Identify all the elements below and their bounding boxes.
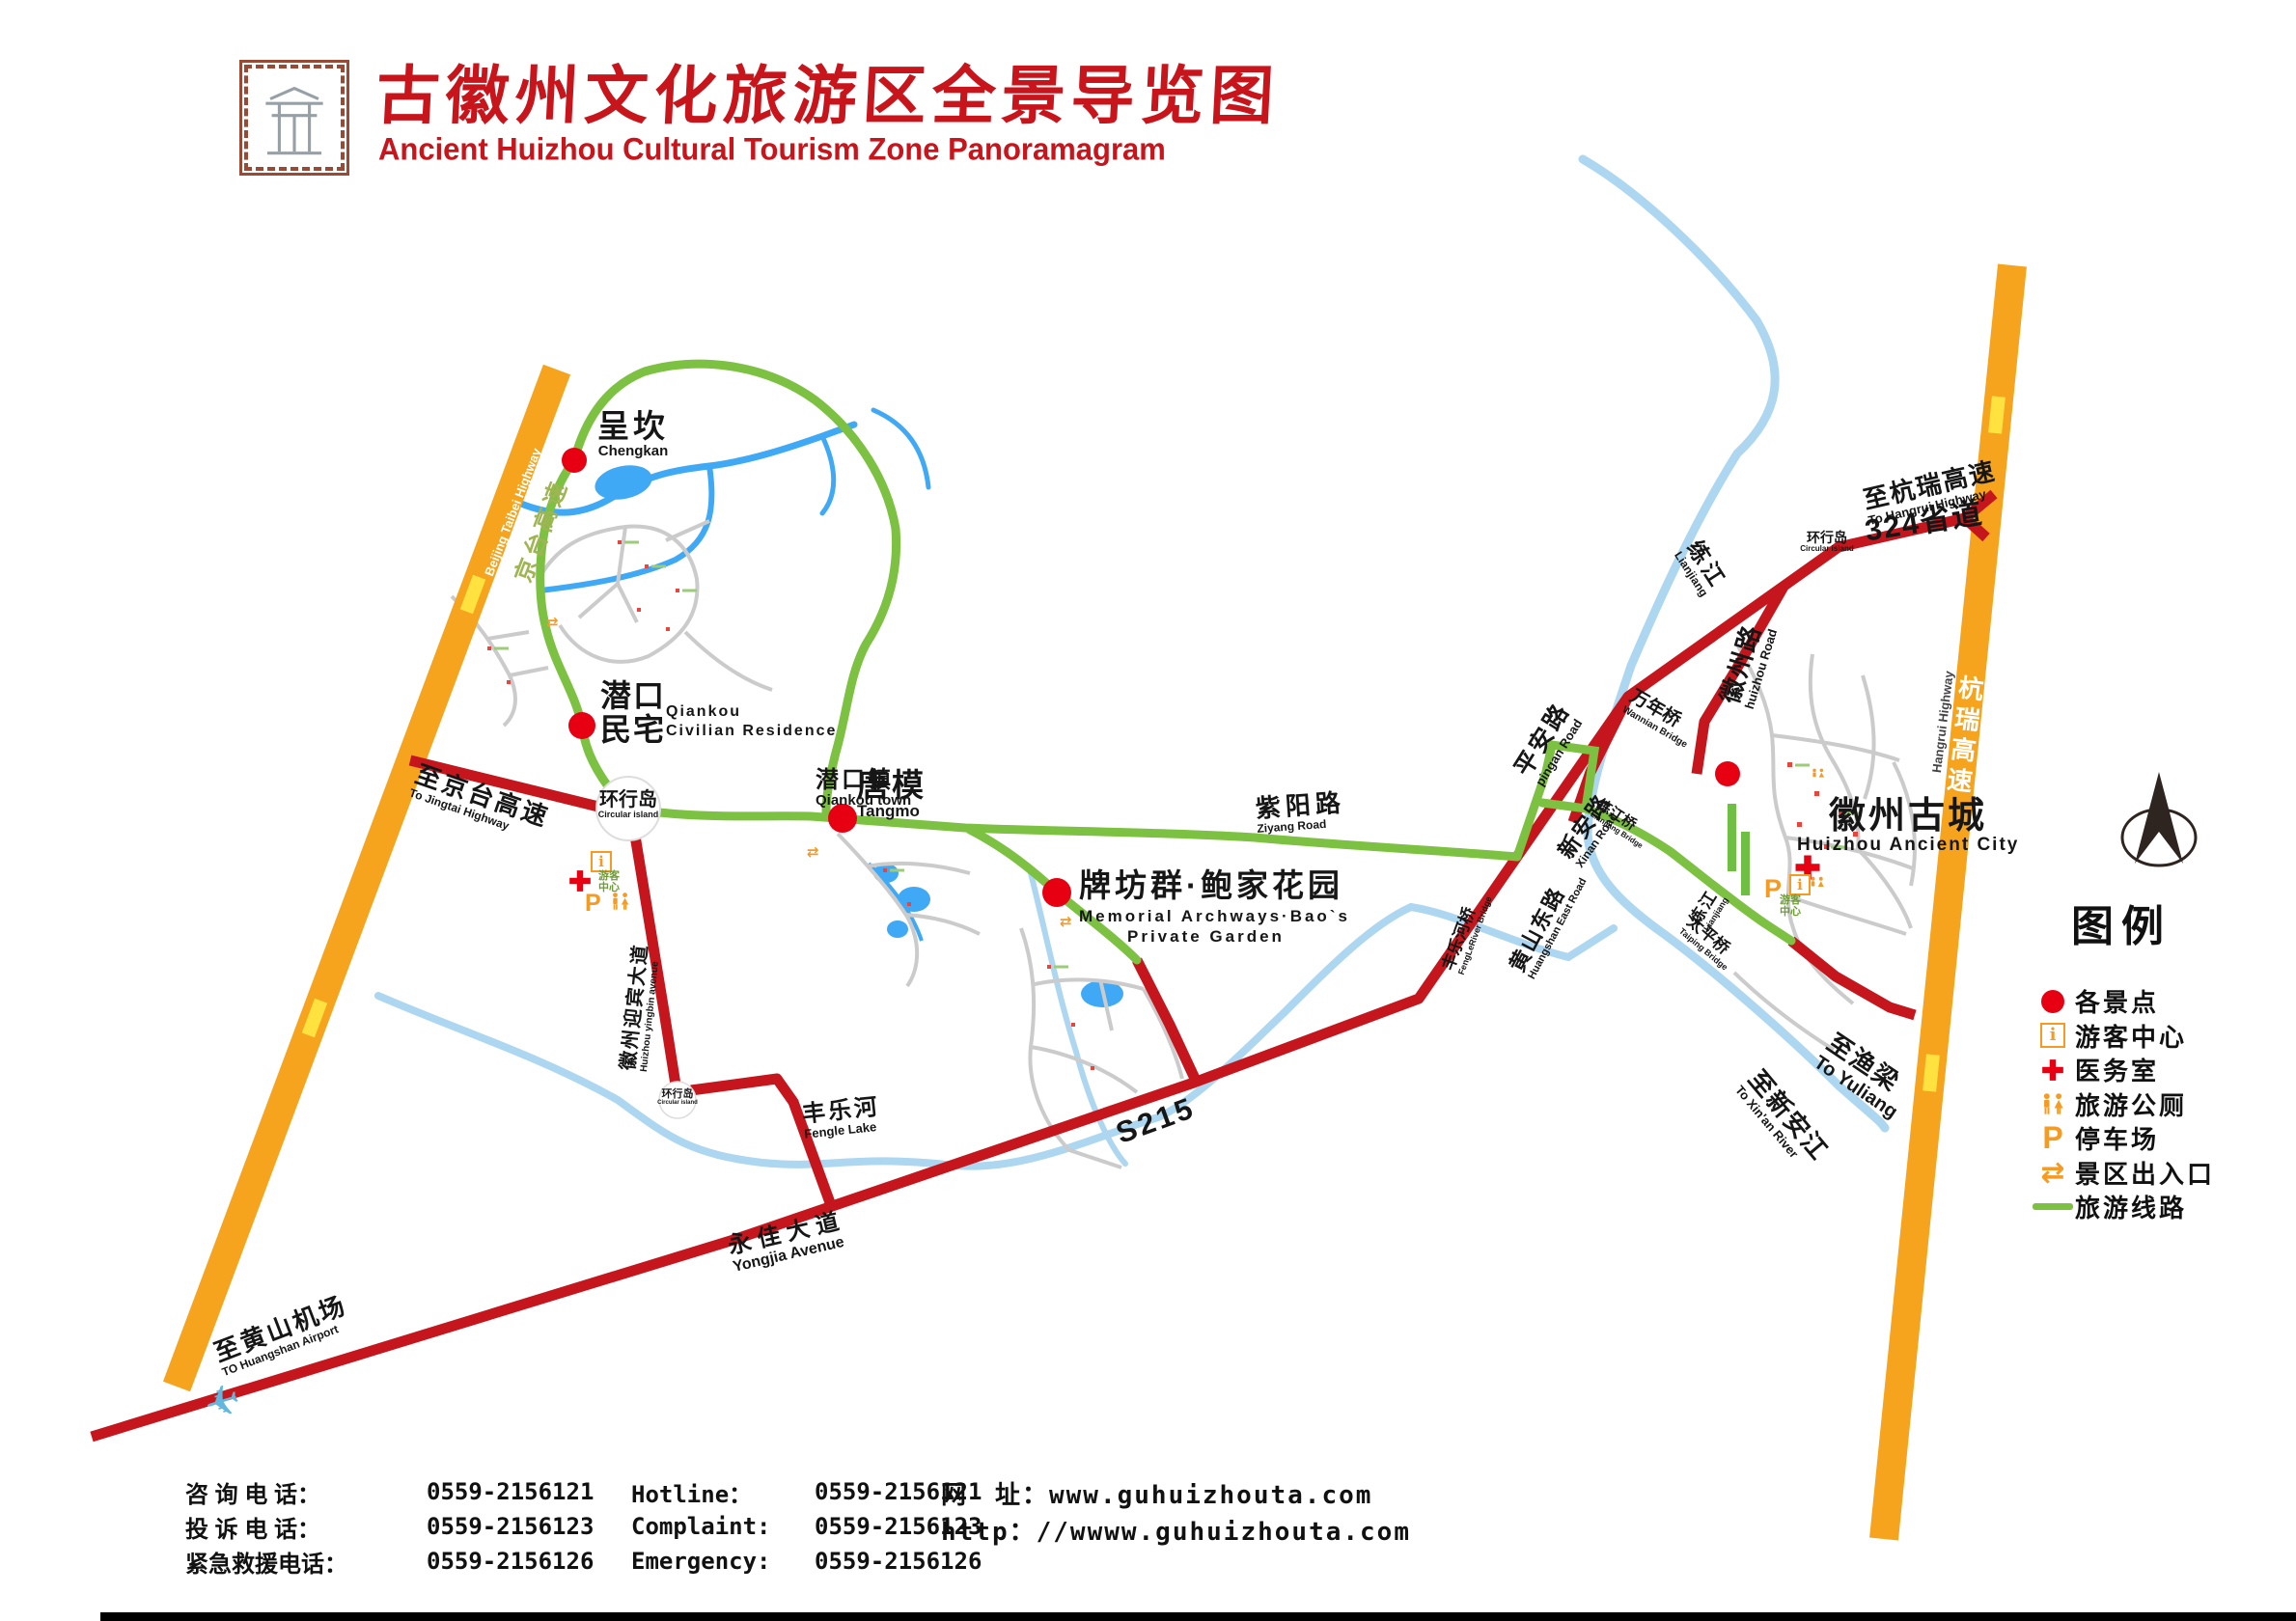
spot-huizhou-city	[1715, 761, 1740, 786]
legend-title: 图例	[2071, 892, 2296, 953]
contact-row-complaint: 投 诉 电 话： 0559-2156123 Complaint: 0559-21…	[185, 1509, 982, 1544]
panorama-map-page: 古徽州文化旅游区全景导览图 Ancient Huizhou Cultural T…	[0, 0, 2296, 1621]
pond-chengkan	[592, 460, 655, 505]
toilet-icon-city-north	[1811, 768, 1826, 782]
visitor-center-icon-city: i	[1789, 874, 1811, 895]
contact-info: 咨 询 电 话： 0559-2156121 Hotline： 0559-2156…	[185, 1474, 982, 1579]
river-fengle	[378, 873, 1614, 1167]
north-arrow-icon	[2122, 772, 2196, 865]
toilet-icon-west	[610, 892, 631, 911]
label-paifang-cn: 牌坊群·鲍家花园	[1079, 868, 1343, 903]
entrance-icon-1: ⇄	[546, 614, 559, 631]
label-qiankou-cn: 潜口 民宅	[600, 679, 666, 747]
website-line1: 网 址：www.guhuizhouta.com	[941, 1478, 1411, 1515]
tourism-route-line-icon	[2031, 1203, 2075, 1211]
scenic-spot-dot-icon	[2031, 989, 2075, 1014]
entrance-icon-2: ⇄	[807, 843, 819, 861]
label-paifang-en1: Memorial Archways·Bao`s	[1079, 908, 1350, 926]
website-info: 网 址：www.guhuizhouta.com http：//wwww.guhu…	[941, 1478, 1411, 1551]
label-ziyang-road: 紫阳路 Ziyang Road	[1255, 789, 1347, 836]
label-tangmo: 唐模 Tangmo	[857, 768, 927, 821]
entrance-exit-icon: ⇄	[2031, 1156, 2075, 1190]
visitor-center-icon-west: i	[591, 851, 612, 872]
legend-row-scenic-spot: 各景点	[2031, 984, 2296, 1019]
website-line2: http：//wwww.guhuizhouta.com	[941, 1515, 1411, 1552]
legend: 图例 各景点 i 游客中心 医务室 旅游	[2031, 892, 2296, 1224]
ancient-city-green-strips	[1728, 804, 1750, 895]
clinic-cross-icon	[2031, 1058, 2075, 1083]
contact-row-hotline: 咨 询 电 话： 0559-2156121 Hotline： 0559-2156…	[185, 1474, 982, 1509]
label-huizhou-city-en: Huizhou Ancient City	[1797, 836, 2019, 856]
legend-row-toilet: 旅游公厕	[2031, 1087, 2296, 1122]
page-subtitle: Ancient Huizhou Cultural Tourism Zone Pa…	[378, 131, 1166, 168]
tourist-center-text-city: 游客中心	[1780, 895, 1803, 918]
parking-icon: P	[2031, 1120, 2075, 1156]
spot-qiankou	[568, 712, 595, 739]
label-huizhou-city-cn: 徽州古城	[1829, 797, 1987, 838]
huizhou-gate-logo	[239, 60, 349, 176]
entrance-icon-3: ⇄	[1060, 913, 1072, 930]
legend-row-visitor-center: i 游客中心	[2031, 1019, 2296, 1054]
spot-paifang	[1042, 878, 1071, 907]
toilet-icon-city	[1809, 876, 1826, 892]
legend-row-route: 旅游线路	[2031, 1190, 2296, 1224]
page-title: 古徽州文化旅游区全景导览图	[373, 44, 1282, 137]
road-s215-324	[92, 518, 1965, 1437]
label-circular-island-3: 环行岛 Circular island	[656, 1088, 699, 1107]
legend-row-entrance: ⇄ 景区出入口	[2031, 1156, 2296, 1191]
legend-row-parking: P 停车场	[2031, 1121, 2296, 1156]
visitor-center-icon: i	[2031, 1023, 2075, 1048]
label-qiankou-en: Qiankou Civilian Residence	[666, 701, 837, 740]
spot-chengkan	[562, 448, 587, 473]
highway-hangrui	[1884, 265, 2012, 1539]
road-to-yuliang	[1791, 941, 1915, 1015]
label-fengle-lake: 丰乐河 Fengle Lake	[801, 1095, 883, 1142]
legend-row-clinic: 医务室	[2031, 1053, 2296, 1087]
gate-emblem-icon	[244, 65, 345, 171]
label-chengkan: 呈坎 Chengkan	[587, 409, 679, 460]
contact-row-emergency: 紧急救援电话： 0559-2156126 Emergency: 0559-215…	[185, 1544, 982, 1579]
road-yingbin-south	[691, 1079, 832, 1208]
label-circular-island-1: 环行岛 Circular island	[592, 789, 665, 820]
label-circular-island-2: 环行岛 Circular island	[1793, 531, 1861, 554]
label-paifang-en2: Private Garden	[1127, 928, 1285, 947]
toilet-icon	[2031, 1092, 2075, 1115]
tourist-center-text-west: 游客中心	[598, 871, 622, 893]
bottom-border-bar	[100, 1612, 2296, 1621]
road-paifang-south	[1137, 960, 1197, 1083]
parking-icon-west: P	[585, 890, 601, 918]
